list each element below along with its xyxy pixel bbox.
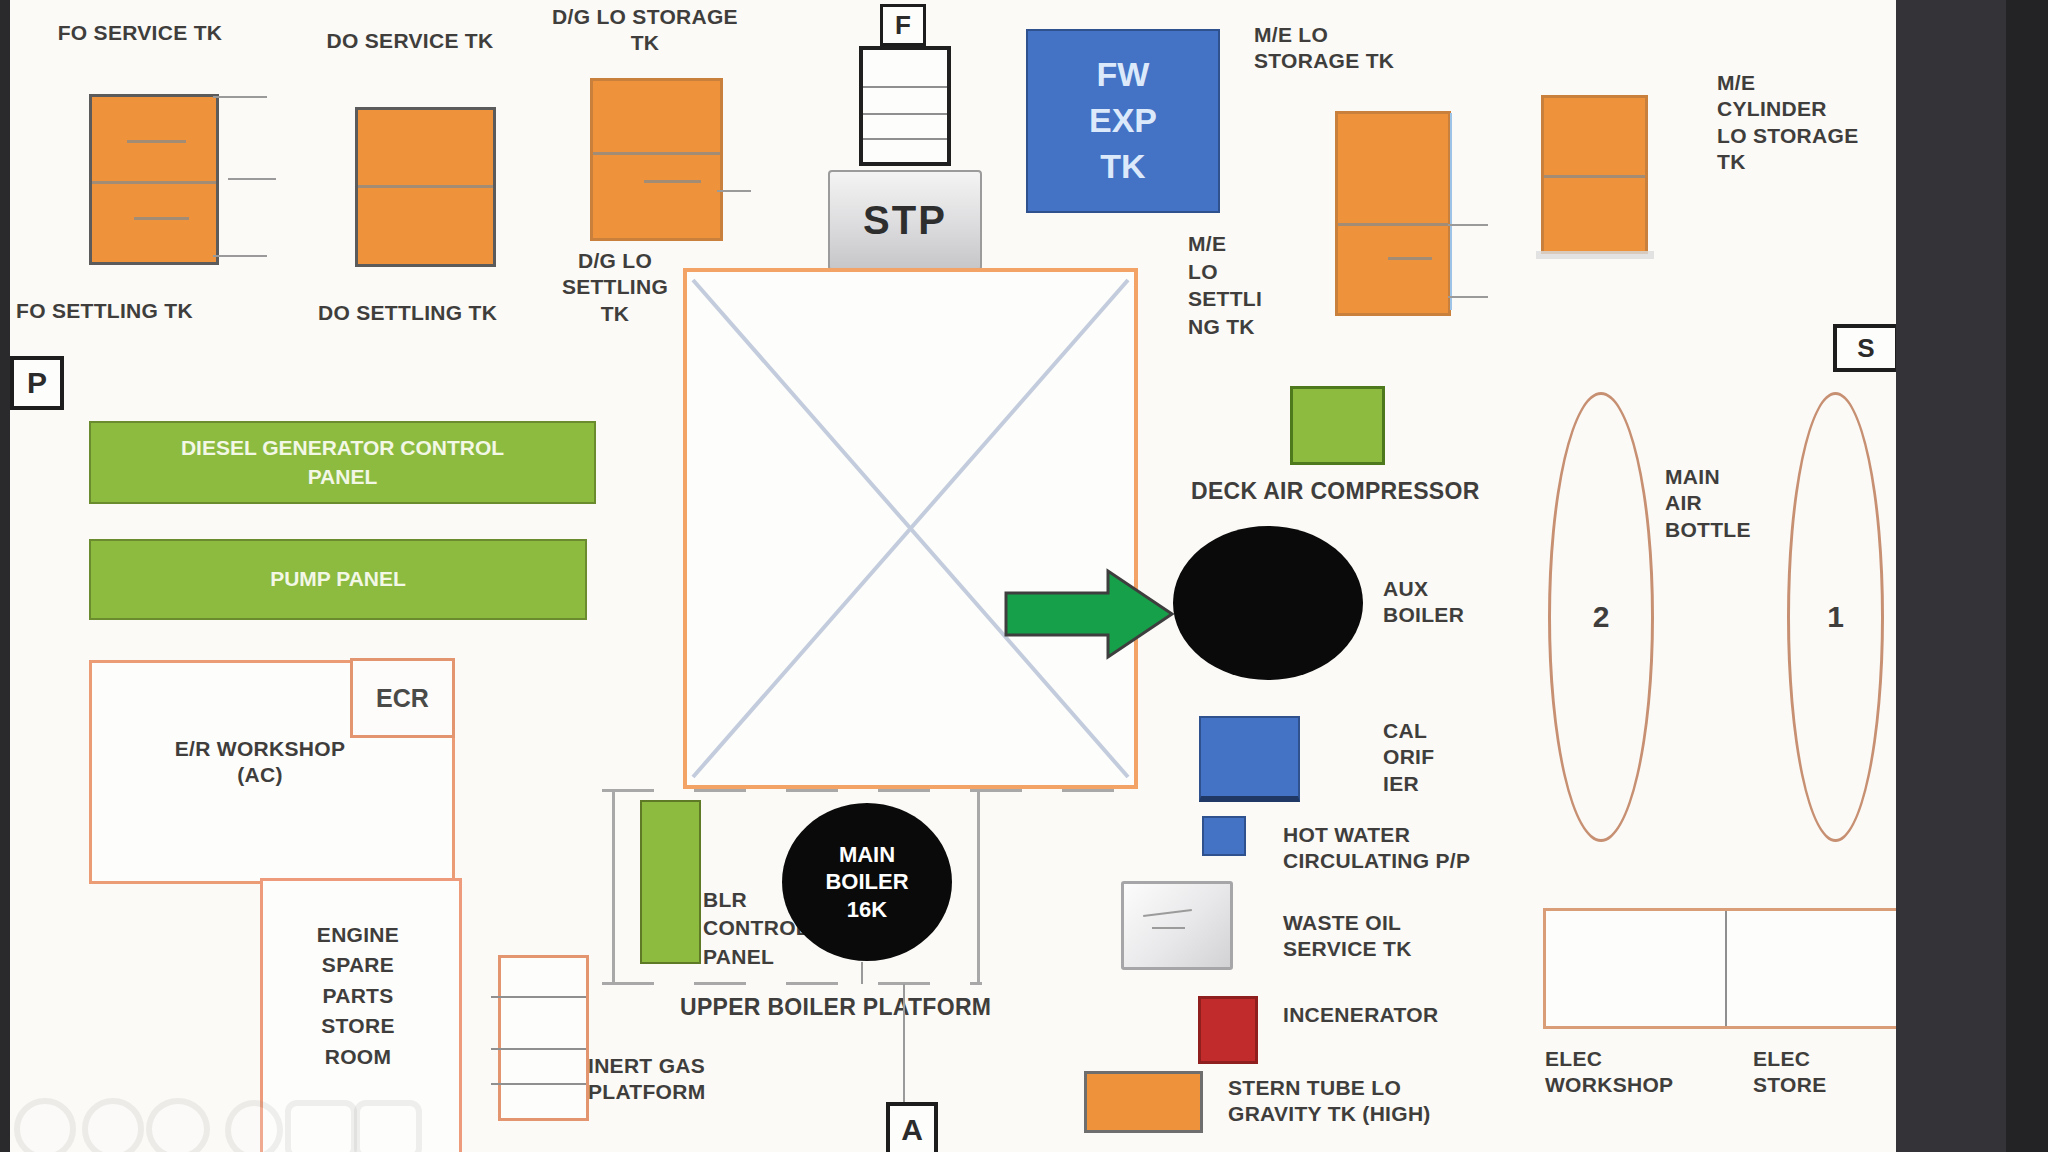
watermark-icon-1[interactable] — [14, 1098, 76, 1152]
viewer-right-panel — [1896, 0, 2048, 1152]
forward-ladder — [859, 46, 951, 166]
elec-room-divider — [1725, 911, 1727, 1026]
platform-dashed-line — [602, 982, 982, 985]
platform-edge-line — [977, 792, 980, 983]
pump-panel: PUMP PANEL — [89, 539, 587, 620]
me-tank-leader-line — [1448, 296, 1488, 298]
engine-spare-parts-label: ENGINE SPARE PARTS STORE ROOM — [278, 920, 438, 1072]
fo-tank-leader-line — [213, 96, 267, 98]
me-cylinder-lo-storage-tk-label: M/E CYLINDER LO STORAGE TK — [1717, 70, 1897, 175]
er-workshop-label: E/R WORKSHOP (AC) — [110, 736, 410, 789]
watermark-icon-6[interactable] — [354, 1100, 422, 1152]
do-settling-tk-label: DO SETTLING TK — [318, 300, 558, 326]
main-air-bottle-2: 2 — [1548, 392, 1654, 842]
elec-rooms — [1543, 908, 1899, 1029]
hot-water-circulating-pp-label: HOT WATER CIRCULATING P/P — [1283, 822, 1523, 875]
fo-settling-tk-label: FO SETTLING TK — [16, 298, 256, 324]
me-lo-storage-tk-label: M/E LO STORAGE TK — [1254, 22, 1444, 75]
starboard-marker: S — [1833, 324, 1899, 372]
waste-oil-service-tk-label: WASTE OIL SERVICE TK — [1283, 910, 1503, 963]
me-lo-storage-tank — [1335, 111, 1451, 316]
aft-marker: A — [886, 1102, 938, 1152]
fo-service-tank — [89, 94, 219, 265]
platform-edge-line — [612, 792, 615, 983]
do-service-tank — [355, 107, 496, 267]
boiler-connector-line — [861, 962, 863, 984]
tank-shadow — [1536, 251, 1654, 259]
me-lo-settling-tk-label: M/E LO SETTLI NG TK — [1188, 230, 1328, 341]
dg-lo-settling-tk-label: D/G LO SETTLING TK — [540, 248, 690, 327]
fo-tank-leader-line — [228, 178, 276, 180]
watermark-icon-2[interactable] — [82, 1098, 144, 1152]
main-boiler: MAIN BOILER 16K — [782, 803, 952, 961]
dg-lo-storage-tk-label: D/G LO STORAGE TK — [535, 4, 755, 57]
me-cylinder-lo-storage-tank — [1541, 95, 1648, 254]
aux-boiler-label: AUX BOILER — [1383, 576, 1503, 629]
stern-tube-lo-gravity-tk-label: STERN TUBE LO GRAVITY TK (HIGH) — [1228, 1075, 1478, 1128]
green-pointer-arrow-icon — [1004, 568, 1176, 660]
engine-room-layout-diagram: FO SERVICE TK FO SETTLING TK DO SERVICE … — [0, 0, 2048, 1152]
fo-tank-leader-line — [213, 255, 267, 257]
diesel-generator-control-panel: DIESEL GENERATOR CONTROL PANEL — [89, 421, 596, 504]
deck-air-compressor-label: DECK AIR COMPRESSOR — [1191, 477, 1521, 506]
blr-control-panel — [640, 800, 701, 964]
elec-store-label: ELEC STORE — [1753, 1046, 1883, 1099]
calorifier-label: CAL ORIF IER — [1383, 718, 1483, 797]
inert-gas-platform-label: INERT GAS PLATFORM — [588, 1053, 768, 1106]
elec-workshop-label: ELEC WORKSHOP — [1545, 1046, 1715, 1099]
forward-marker: F — [880, 4, 926, 46]
deck-air-compressor — [1290, 386, 1385, 465]
fo-service-tk-label: FO SERVICE TK — [20, 20, 260, 46]
watermark-icon-4[interactable] — [225, 1100, 283, 1152]
watermark-icon-3[interactable] — [146, 1098, 210, 1152]
stp-sewage-treatment-plant: STP — [828, 170, 982, 271]
incinerator — [1198, 996, 1258, 1064]
me-tank-leader-line — [1448, 224, 1488, 226]
watermark-icon-5[interactable] — [285, 1100, 357, 1152]
me-tank-gauge-line — [1450, 113, 1452, 310]
inert-gas-platform-ladder — [498, 955, 589, 1121]
hot-water-circulating-pump — [1202, 816, 1246, 856]
incenerator-label: INCENERATOR — [1283, 1002, 1523, 1028]
viewer-left-edge — [0, 0, 10, 1152]
fw-expansion-tank: FW EXP TK — [1026, 29, 1220, 213]
main-air-bottle-1: 1 — [1787, 392, 1884, 842]
calorifier — [1199, 716, 1300, 802]
dg-tank-leader-line — [717, 190, 751, 192]
platform-dashed-line — [602, 789, 1130, 792]
stern-tube-lo-gravity-tank — [1084, 1071, 1203, 1133]
main-engine-casing — [683, 268, 1138, 789]
port-marker: P — [10, 356, 64, 410]
dg-lo-storage-tank — [590, 78, 723, 241]
upper-boiler-platform-label: UPPER BOILER PLATFORM — [680, 993, 1040, 1022]
do-service-tk-label: DO SERVICE TK — [300, 28, 520, 54]
waste-oil-service-tank — [1121, 881, 1233, 970]
aft-connector-line — [903, 984, 905, 1102]
aux-boiler-shape — [1173, 526, 1363, 680]
ecr-room: ECR — [350, 658, 455, 738]
main-air-bottle-label: MAIN AIR BOTTLE — [1665, 464, 1795, 543]
